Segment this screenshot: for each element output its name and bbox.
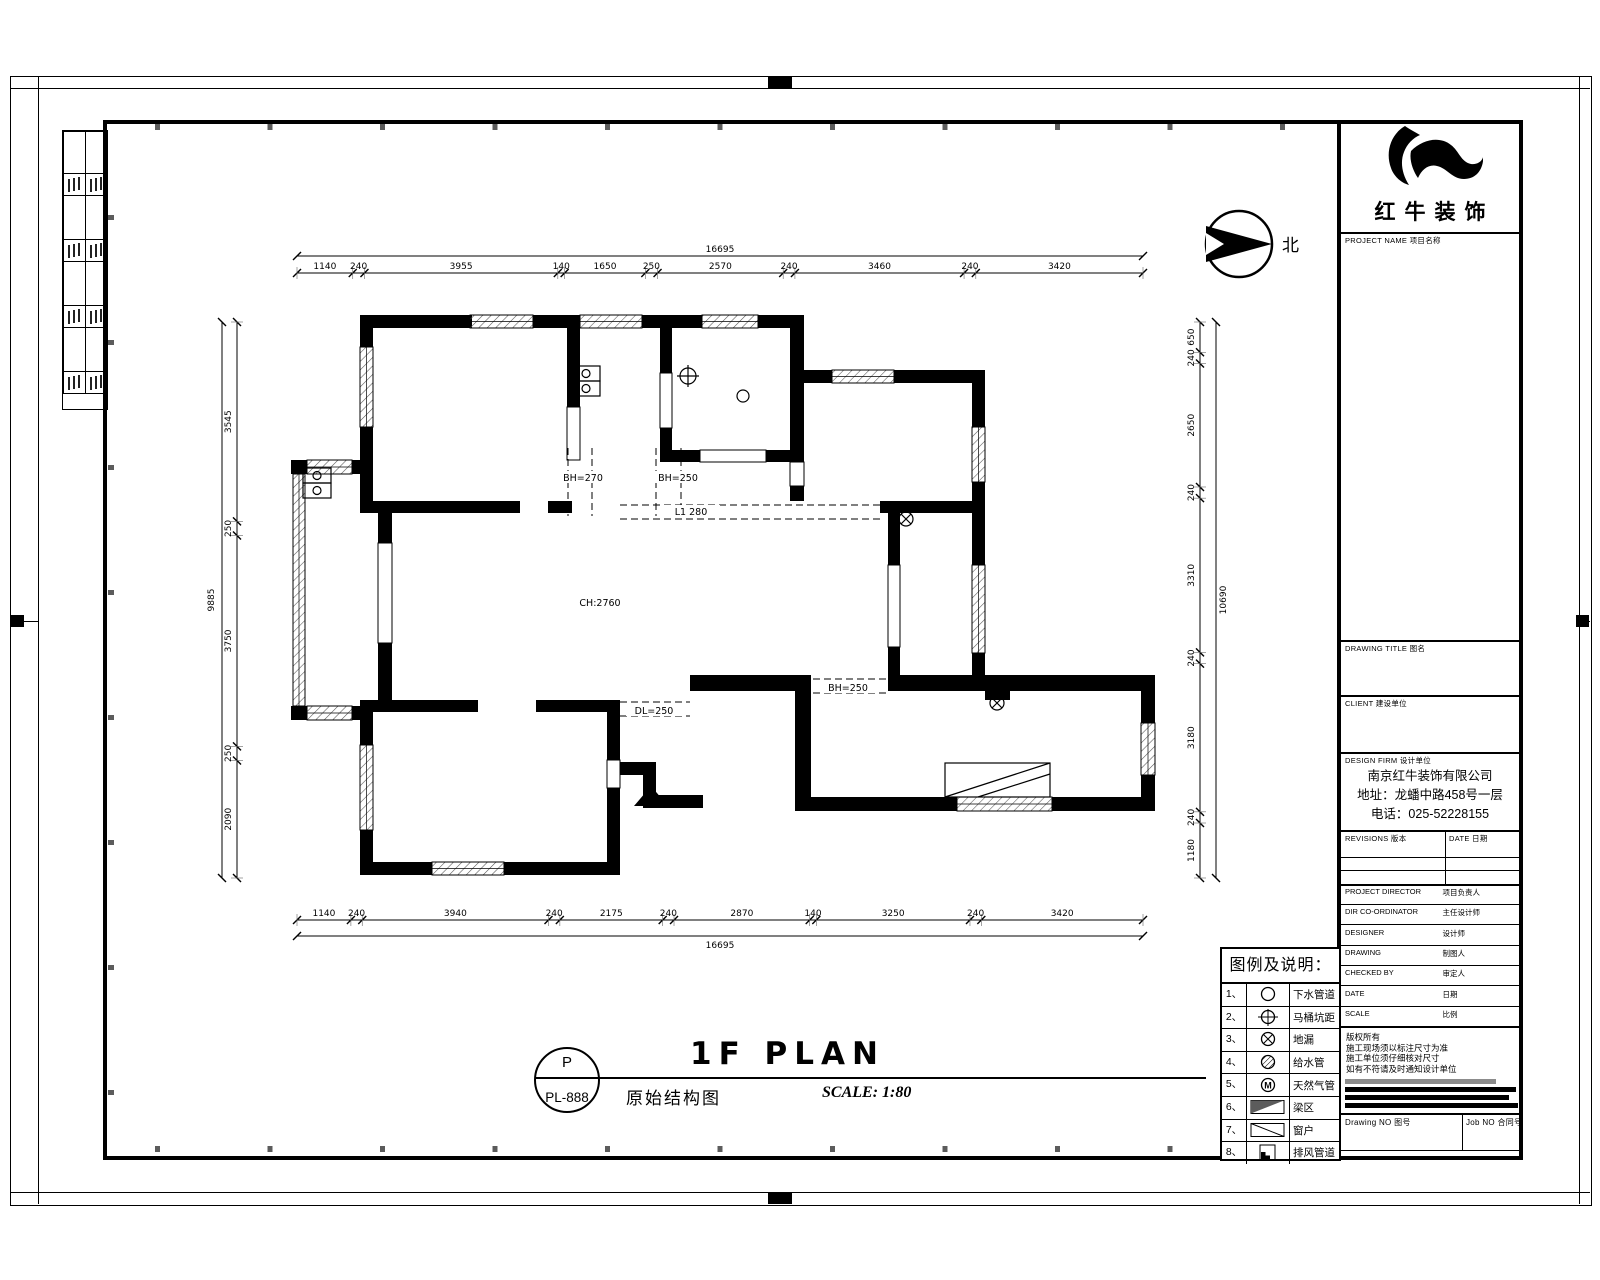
north-label: 北 xyxy=(1282,236,1299,255)
tb-line xyxy=(1341,1113,1519,1115)
grid-mark xyxy=(943,1146,948,1152)
dimension-value: 3250 xyxy=(882,909,905,919)
dimension-total: 16695 xyxy=(706,941,735,951)
dimension-value: 240 xyxy=(350,262,367,272)
grid-mark xyxy=(1168,124,1173,130)
wall xyxy=(360,501,520,513)
dimension-value: 2650 xyxy=(1187,414,1197,437)
personnel-role-cn: 审定人 xyxy=(1442,968,1465,979)
beam-label-bh250b: BH=250 xyxy=(828,683,868,694)
dimension-value: 3545 xyxy=(224,410,234,433)
wall xyxy=(1141,775,1155,811)
wall xyxy=(880,501,985,513)
dimension-value: 1650 xyxy=(594,262,617,272)
grid-mark xyxy=(718,1146,723,1152)
project-name-label: PROJECT NAME 项目名称 xyxy=(1345,235,1441,246)
firm-address: 地址：龙蟠中路458号一层 xyxy=(1341,786,1519,805)
wall xyxy=(291,460,307,474)
personnel-row: DESIGNER设计师 xyxy=(1341,925,1519,946)
dimension-total: 9885 xyxy=(207,589,217,612)
grid-mark xyxy=(830,1146,835,1152)
wall xyxy=(378,513,392,543)
north-arrow: 北 xyxy=(1206,211,1299,277)
notes-line xyxy=(1345,1095,1509,1100)
thin-wall xyxy=(567,407,580,460)
personnel-role-en: SCALE xyxy=(1345,1009,1370,1018)
wall xyxy=(660,315,672,373)
legend-row-label: 给水管 xyxy=(1290,1055,1339,1070)
note-line: 施工现场须以标注尺寸为准 xyxy=(1346,1043,1457,1054)
legend-row-number: 1、 xyxy=(1222,984,1247,1006)
legend-row-label: 地漏 xyxy=(1290,1032,1339,1047)
wall xyxy=(972,370,985,427)
legend-row-number: 2、 xyxy=(1222,1007,1247,1029)
title-underline xyxy=(536,1077,1206,1079)
legend-row: 6、梁区 xyxy=(1222,1097,1339,1120)
notes-line xyxy=(1345,1087,1516,1092)
grid-mark xyxy=(380,1146,385,1152)
personnel-role-cn: 设计师 xyxy=(1442,928,1465,939)
beam-label-dl250: DL=250 xyxy=(635,706,674,717)
firm-name: 南京红牛装饰有限公司 xyxy=(1341,767,1519,786)
dimension-value: 250 xyxy=(224,520,234,537)
wall xyxy=(1052,797,1155,811)
drawing-title-label: DRAWING TITLE 图名 xyxy=(1345,643,1425,654)
dimension-value: 3955 xyxy=(450,262,473,272)
notes-smudged-lines xyxy=(1341,1076,1519,1108)
dimension-value: 250 xyxy=(643,262,660,272)
wall xyxy=(536,700,620,712)
grid-mark xyxy=(380,124,385,130)
revision-date-label: DATE 日期 xyxy=(1449,833,1488,844)
wall xyxy=(690,675,811,691)
tb-line xyxy=(1341,752,1519,754)
wall xyxy=(672,450,700,462)
legend-row-label: 排风管道 xyxy=(1290,1145,1339,1160)
grid-mark xyxy=(605,124,610,130)
wall xyxy=(360,862,432,875)
plan-subtitle: 原始结构图 xyxy=(626,1084,721,1109)
personnel-role-cn: 日期 xyxy=(1442,989,1457,1000)
wall xyxy=(672,315,702,328)
duct-icon xyxy=(1247,1142,1290,1164)
dimension-value: 3420 xyxy=(1051,909,1074,919)
drain-pipe-icon xyxy=(737,390,749,402)
grid-mark xyxy=(268,1146,273,1152)
bubble-top-text: P xyxy=(536,1054,598,1071)
wall xyxy=(795,797,957,811)
tb-line xyxy=(1341,857,1519,858)
personnel-row: SCALE比例 xyxy=(1341,1006,1519,1026)
thin-wall xyxy=(378,543,392,643)
revisions-label: REVISIONS 版本 xyxy=(1345,833,1407,844)
note-line: 如有不符请及时通知设计单位 xyxy=(1346,1064,1457,1075)
wall xyxy=(804,370,832,383)
circle-x-icon xyxy=(1247,1029,1290,1051)
dimension-value: 240 xyxy=(967,909,984,919)
grid-mark xyxy=(108,715,114,720)
legend-row-label: 梁区 xyxy=(1290,1100,1339,1115)
beam-label-bh250a: BH=250 xyxy=(658,473,698,484)
notes-text: 版权所有施工现场须以标注尺寸为准施工单位须仔细核对尺寸如有不符请及时通知设计单位 xyxy=(1346,1032,1457,1074)
dimension-value: 650 xyxy=(1187,328,1197,345)
legend-row-number: 4、 xyxy=(1222,1052,1247,1074)
dimension-total: 10690 xyxy=(1219,585,1229,614)
wall xyxy=(790,315,804,462)
windows xyxy=(293,315,1155,875)
dimension-value: 240 xyxy=(1187,484,1197,501)
legend-row: 7、窗户 xyxy=(1222,1120,1339,1143)
legend-row: 2、马桶坑距 xyxy=(1222,1007,1339,1030)
drawing-no-label: Drawing NO 图号 xyxy=(1345,1117,1411,1128)
thin-partitions xyxy=(378,373,900,788)
legend-row-number: 5、 xyxy=(1222,1074,1247,1096)
hongniu-logo-icon xyxy=(1379,124,1483,196)
plan-symbols xyxy=(303,365,1050,806)
thin-wall xyxy=(660,373,672,428)
dimension-value: 1180 xyxy=(1187,839,1197,862)
dimension-total: 16695 xyxy=(706,245,735,255)
pipe-circle-icon xyxy=(582,370,590,378)
dimension-value: 240 xyxy=(546,909,563,919)
beam-icon xyxy=(1247,1097,1290,1119)
dimension-value: 2175 xyxy=(600,909,623,919)
legend-box: 图例及说明： 1、下水管道2、马桶坑距3、地漏4、给水管5、M天然气管6、梁区7… xyxy=(1220,947,1341,1161)
grid-mark xyxy=(108,590,114,595)
legend-row-label: 马桶坑距 xyxy=(1290,1010,1339,1025)
drawing-number-bubble: P PL-888 xyxy=(534,1047,600,1113)
note-line: 版权所有 xyxy=(1346,1032,1457,1043)
legend-row-label: 窗户 xyxy=(1290,1123,1339,1138)
legend-title: 图例及说明： xyxy=(1222,949,1339,984)
legend-rows: 1、下水管道2、马桶坑距3、地漏4、给水管5、M天然气管6、梁区7、窗户8、排风… xyxy=(1222,984,1339,1164)
dimension-value: 3460 xyxy=(868,262,891,272)
window-icon xyxy=(1247,1120,1290,1142)
grid-mark xyxy=(1055,1146,1060,1152)
legend-row: 5、M天然气管 xyxy=(1222,1074,1339,1097)
dimension-value: 240 xyxy=(1187,349,1197,366)
walls xyxy=(291,315,1155,875)
tb-line xyxy=(1341,232,1519,234)
wall xyxy=(360,700,373,745)
dimension-value: 3180 xyxy=(1187,726,1197,749)
personnel-role-en: DRAWING xyxy=(1345,948,1381,957)
grid-mark xyxy=(108,340,114,345)
wall xyxy=(795,691,811,805)
dimension-value: 3310 xyxy=(1187,564,1197,587)
circle-hatch-icon xyxy=(1247,1052,1290,1074)
dimension-value: 140 xyxy=(553,262,570,272)
dimension-value: 240 xyxy=(1187,809,1197,826)
legend-row-label: 天然气管 xyxy=(1290,1078,1339,1093)
wall xyxy=(888,513,900,565)
grid-mark xyxy=(108,965,114,970)
personnel-role-cn: 项目负责人 xyxy=(1442,887,1480,898)
legend-row: 1、下水管道 xyxy=(1222,984,1339,1007)
firm-phone: 电话：025-52228155 xyxy=(1341,805,1519,824)
beam-label-bh270: BH=270 xyxy=(563,473,603,484)
wall xyxy=(607,788,620,862)
pipe-circle-icon xyxy=(582,385,590,393)
personnel-row: CHECKED BY审定人 xyxy=(1341,965,1519,986)
plan-scale: SCALE: 1:80 xyxy=(822,1084,911,1102)
grid-mark xyxy=(605,1146,610,1152)
legend-row-number: 8、 xyxy=(1222,1142,1247,1164)
wall xyxy=(972,513,985,565)
grid-mark xyxy=(108,1090,114,1095)
grid-mark xyxy=(718,124,723,130)
circle-icon xyxy=(1247,984,1290,1006)
thin-wall xyxy=(790,462,804,486)
thin-wall xyxy=(700,450,766,462)
wall xyxy=(790,486,804,501)
dimension-value: 1140 xyxy=(313,262,336,272)
wall xyxy=(504,862,620,875)
legend-row-number: 6、 xyxy=(1222,1097,1247,1119)
dimension-value: 250 xyxy=(224,745,234,762)
grid-mark xyxy=(943,124,948,130)
thin-wall xyxy=(888,565,900,647)
plan-title: 1F PLAN xyxy=(690,1036,885,1072)
wall xyxy=(894,370,985,383)
bubble-bottom-text: PL-888 xyxy=(536,1090,598,1105)
wall xyxy=(352,460,372,474)
design-firm-label: DESIGN FIRM 设计单位 xyxy=(1345,755,1431,766)
dimension-value: 2090 xyxy=(224,807,234,830)
personnel-row: DATE日期 xyxy=(1341,986,1519,1007)
dimension-value: 140 xyxy=(804,909,821,919)
dimension-value: 2570 xyxy=(709,262,732,272)
personnel-role-cn: 制图人 xyxy=(1442,948,1465,959)
personnel-row: DIR CO-ORDINATOR主任设计师 xyxy=(1341,904,1519,925)
wall xyxy=(607,712,620,760)
tb-line xyxy=(1341,870,1519,871)
grid-mark xyxy=(108,215,114,220)
cad-sheet: { "branding": { "company": "红牛装饰" }, "no… xyxy=(0,0,1600,1280)
grid-mark xyxy=(1168,1146,1173,1152)
personnel-role-en: PROJECT DIRECTOR xyxy=(1345,887,1421,896)
legend-row: 3、地漏 xyxy=(1222,1029,1339,1052)
company-name: 红牛装饰 xyxy=(1341,196,1519,226)
dimension-value: 240 xyxy=(961,262,978,272)
tb-line xyxy=(1341,695,1519,697)
wall xyxy=(360,315,373,347)
tb-line xyxy=(1341,1150,1519,1151)
grid-mark xyxy=(493,124,498,130)
grid-mark xyxy=(830,124,835,130)
personnel-role-en: CHECKED BY xyxy=(1345,968,1394,977)
frame-grid-marks xyxy=(108,124,1285,1152)
personnel-row: DRAWING制图人 xyxy=(1341,945,1519,966)
legend-row-number: 7、 xyxy=(1222,1120,1247,1142)
dimension-value: 3420 xyxy=(1048,262,1071,272)
dimension-value: 240 xyxy=(1187,649,1197,666)
grid-mark xyxy=(155,124,160,130)
legend-row-number: 3、 xyxy=(1222,1029,1247,1051)
wall xyxy=(766,450,804,462)
notes-line xyxy=(1345,1103,1518,1108)
tb-line xyxy=(1341,640,1519,642)
wall xyxy=(1141,675,1155,723)
personnel-role-en: DIR CO-ORDINATOR xyxy=(1345,907,1418,916)
grid-mark xyxy=(108,840,114,845)
svg-text:M: M xyxy=(1264,1080,1272,1090)
legend-row: 8、排风管道 xyxy=(1222,1142,1339,1164)
note-line: 施工单位须仔细核对尺寸 xyxy=(1346,1053,1457,1064)
grid-mark xyxy=(1280,124,1285,130)
legend-row-label: 下水管道 xyxy=(1290,987,1339,1002)
personnel-role-cn: 主任设计师 xyxy=(1442,907,1480,918)
dimension-value: 3750 xyxy=(224,629,234,652)
dimension-value: 2870 xyxy=(730,909,753,919)
personnel-role-cn: 比例 xyxy=(1442,1009,1457,1020)
grid-mark xyxy=(268,124,273,130)
dimension-value: 240 xyxy=(660,909,677,919)
circle-cross-icon xyxy=(1247,1007,1290,1029)
personnel-role-en: DATE xyxy=(1345,989,1364,998)
circle-m-icon: M xyxy=(1247,1074,1290,1096)
title-block: 红牛装饰 PROJECT NAME 项目名称 DRAWING TITLE 图名 … xyxy=(1341,120,1519,1156)
ceiling-height-label: CH:2760 xyxy=(579,598,620,609)
dimension-value: 240 xyxy=(780,262,797,272)
meter-box xyxy=(303,483,331,498)
tb-line xyxy=(1341,830,1519,832)
tb-vline xyxy=(1462,1113,1463,1150)
wall xyxy=(567,315,580,407)
client-label: CLIENT 建设单位 xyxy=(1345,698,1407,709)
grid-mark xyxy=(155,1146,160,1152)
wall xyxy=(291,706,307,720)
notes-line xyxy=(1345,1079,1496,1084)
wall xyxy=(360,700,478,712)
legend-row: 4、给水管 xyxy=(1222,1052,1339,1075)
notes-box: 版权所有施工现场须以标注尺寸为准施工单位须仔细核对尺寸如有不符请及时通知设计单位 xyxy=(1341,1028,1519,1113)
beam-label-l280: L1 280 xyxy=(675,507,708,518)
dimension-value: 3940 xyxy=(444,909,467,919)
personnel-row: PROJECT DIRECTOR项目负责人 xyxy=(1341,884,1519,905)
wall xyxy=(360,315,472,328)
grid-mark xyxy=(1055,124,1060,130)
dimension-value: 1140 xyxy=(312,909,335,919)
wall xyxy=(888,675,1155,691)
pipe-circle-icon xyxy=(313,487,321,495)
personnel-role-en: DESIGNER xyxy=(1345,928,1384,937)
thin-wall xyxy=(607,760,620,788)
job-no-label: Job NO 合同号 xyxy=(1466,1117,1522,1128)
grid-mark xyxy=(493,1146,498,1152)
wall xyxy=(660,428,672,462)
grid-mark xyxy=(108,465,114,470)
dimension-value: 240 xyxy=(348,909,365,919)
